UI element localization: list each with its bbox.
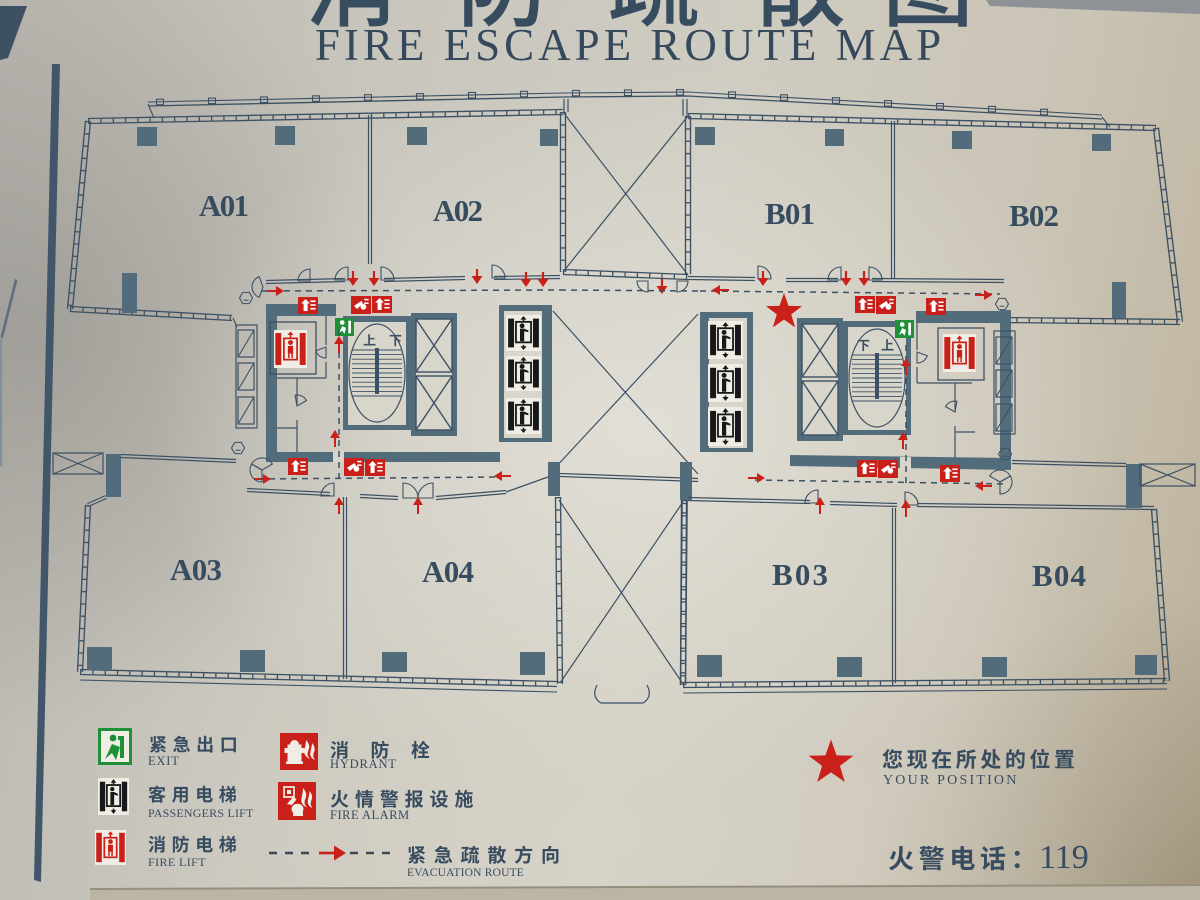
- svg-text:B02: B02: [1009, 198, 1059, 233]
- svg-text:PASSENGERS LIFT: PASSENGERS LIFT: [148, 806, 254, 820]
- svg-text:A04: A04: [422, 554, 474, 589]
- svg-text:EXIT: EXIT: [148, 754, 180, 768]
- svg-text:YOUR POSITION: YOUR POSITION: [883, 773, 1019, 788]
- svg-text:FIRE ALARM: FIRE ALARM: [330, 808, 410, 822]
- svg-text:FIRE ESCAPE ROUTE MAP: FIRE ESCAPE ROUTE MAP: [315, 20, 945, 70]
- svg-text:B04: B04: [1032, 558, 1086, 593]
- svg-text:FIRE LIFT: FIRE LIFT: [148, 855, 206, 869]
- svg-text:EVACUATION ROUTE: EVACUATION ROUTE: [407, 867, 524, 879]
- svg-text:A03: A03: [170, 552, 222, 587]
- svg-text:119: 119: [1039, 839, 1089, 876]
- svg-text:A01: A01: [199, 188, 249, 223]
- svg-text:HYDRANT: HYDRANT: [330, 757, 397, 771]
- svg-text:A02: A02: [433, 193, 483, 228]
- svg-text:B01: B01: [765, 196, 815, 231]
- svg-text:B03: B03: [772, 557, 828, 592]
